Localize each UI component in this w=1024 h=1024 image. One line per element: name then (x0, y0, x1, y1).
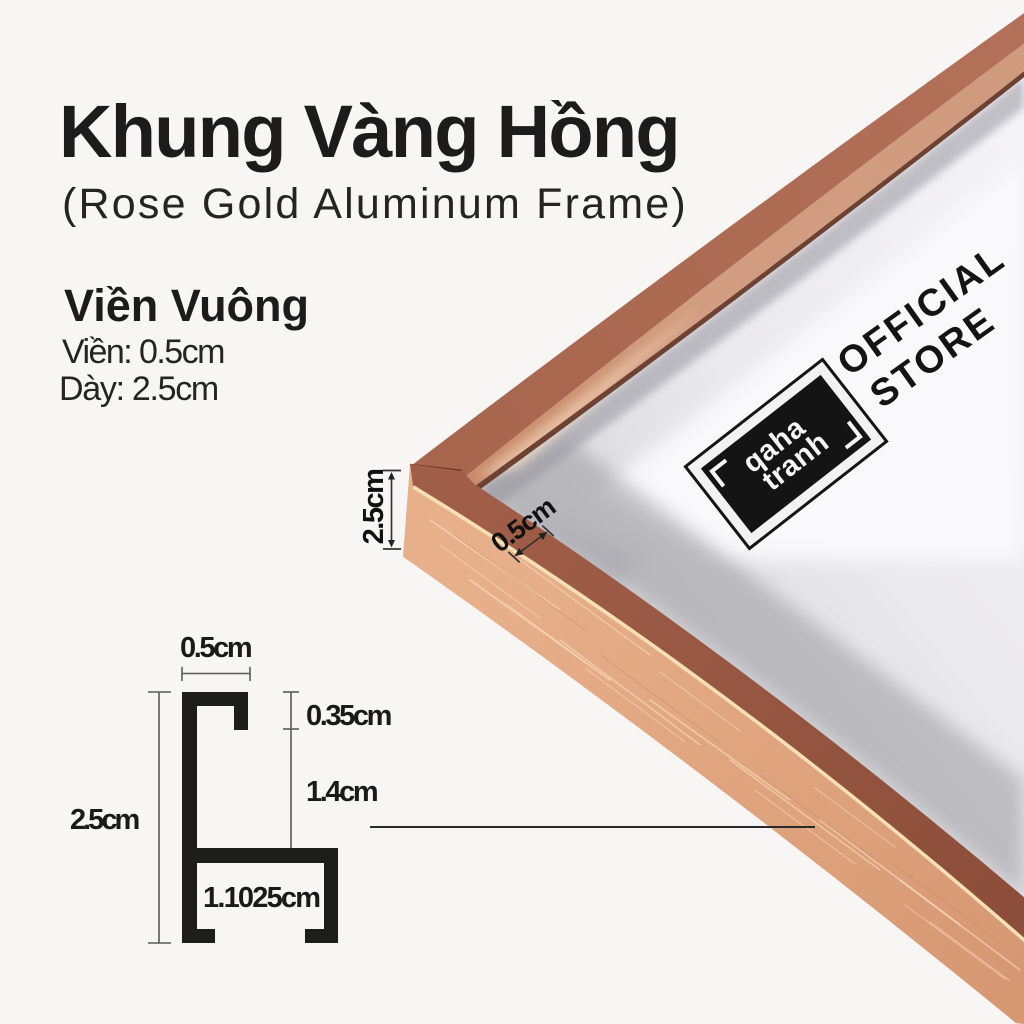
svg-text:1.1025cm: 1.1025cm (203, 882, 319, 914)
svg-text:0.5cm: 0.5cm (180, 632, 251, 664)
svg-text:0.35cm: 0.35cm (306, 700, 391, 732)
svg-text:1.4cm: 1.4cm (306, 776, 377, 808)
svg-text:2.5cm: 2.5cm (70, 804, 138, 836)
